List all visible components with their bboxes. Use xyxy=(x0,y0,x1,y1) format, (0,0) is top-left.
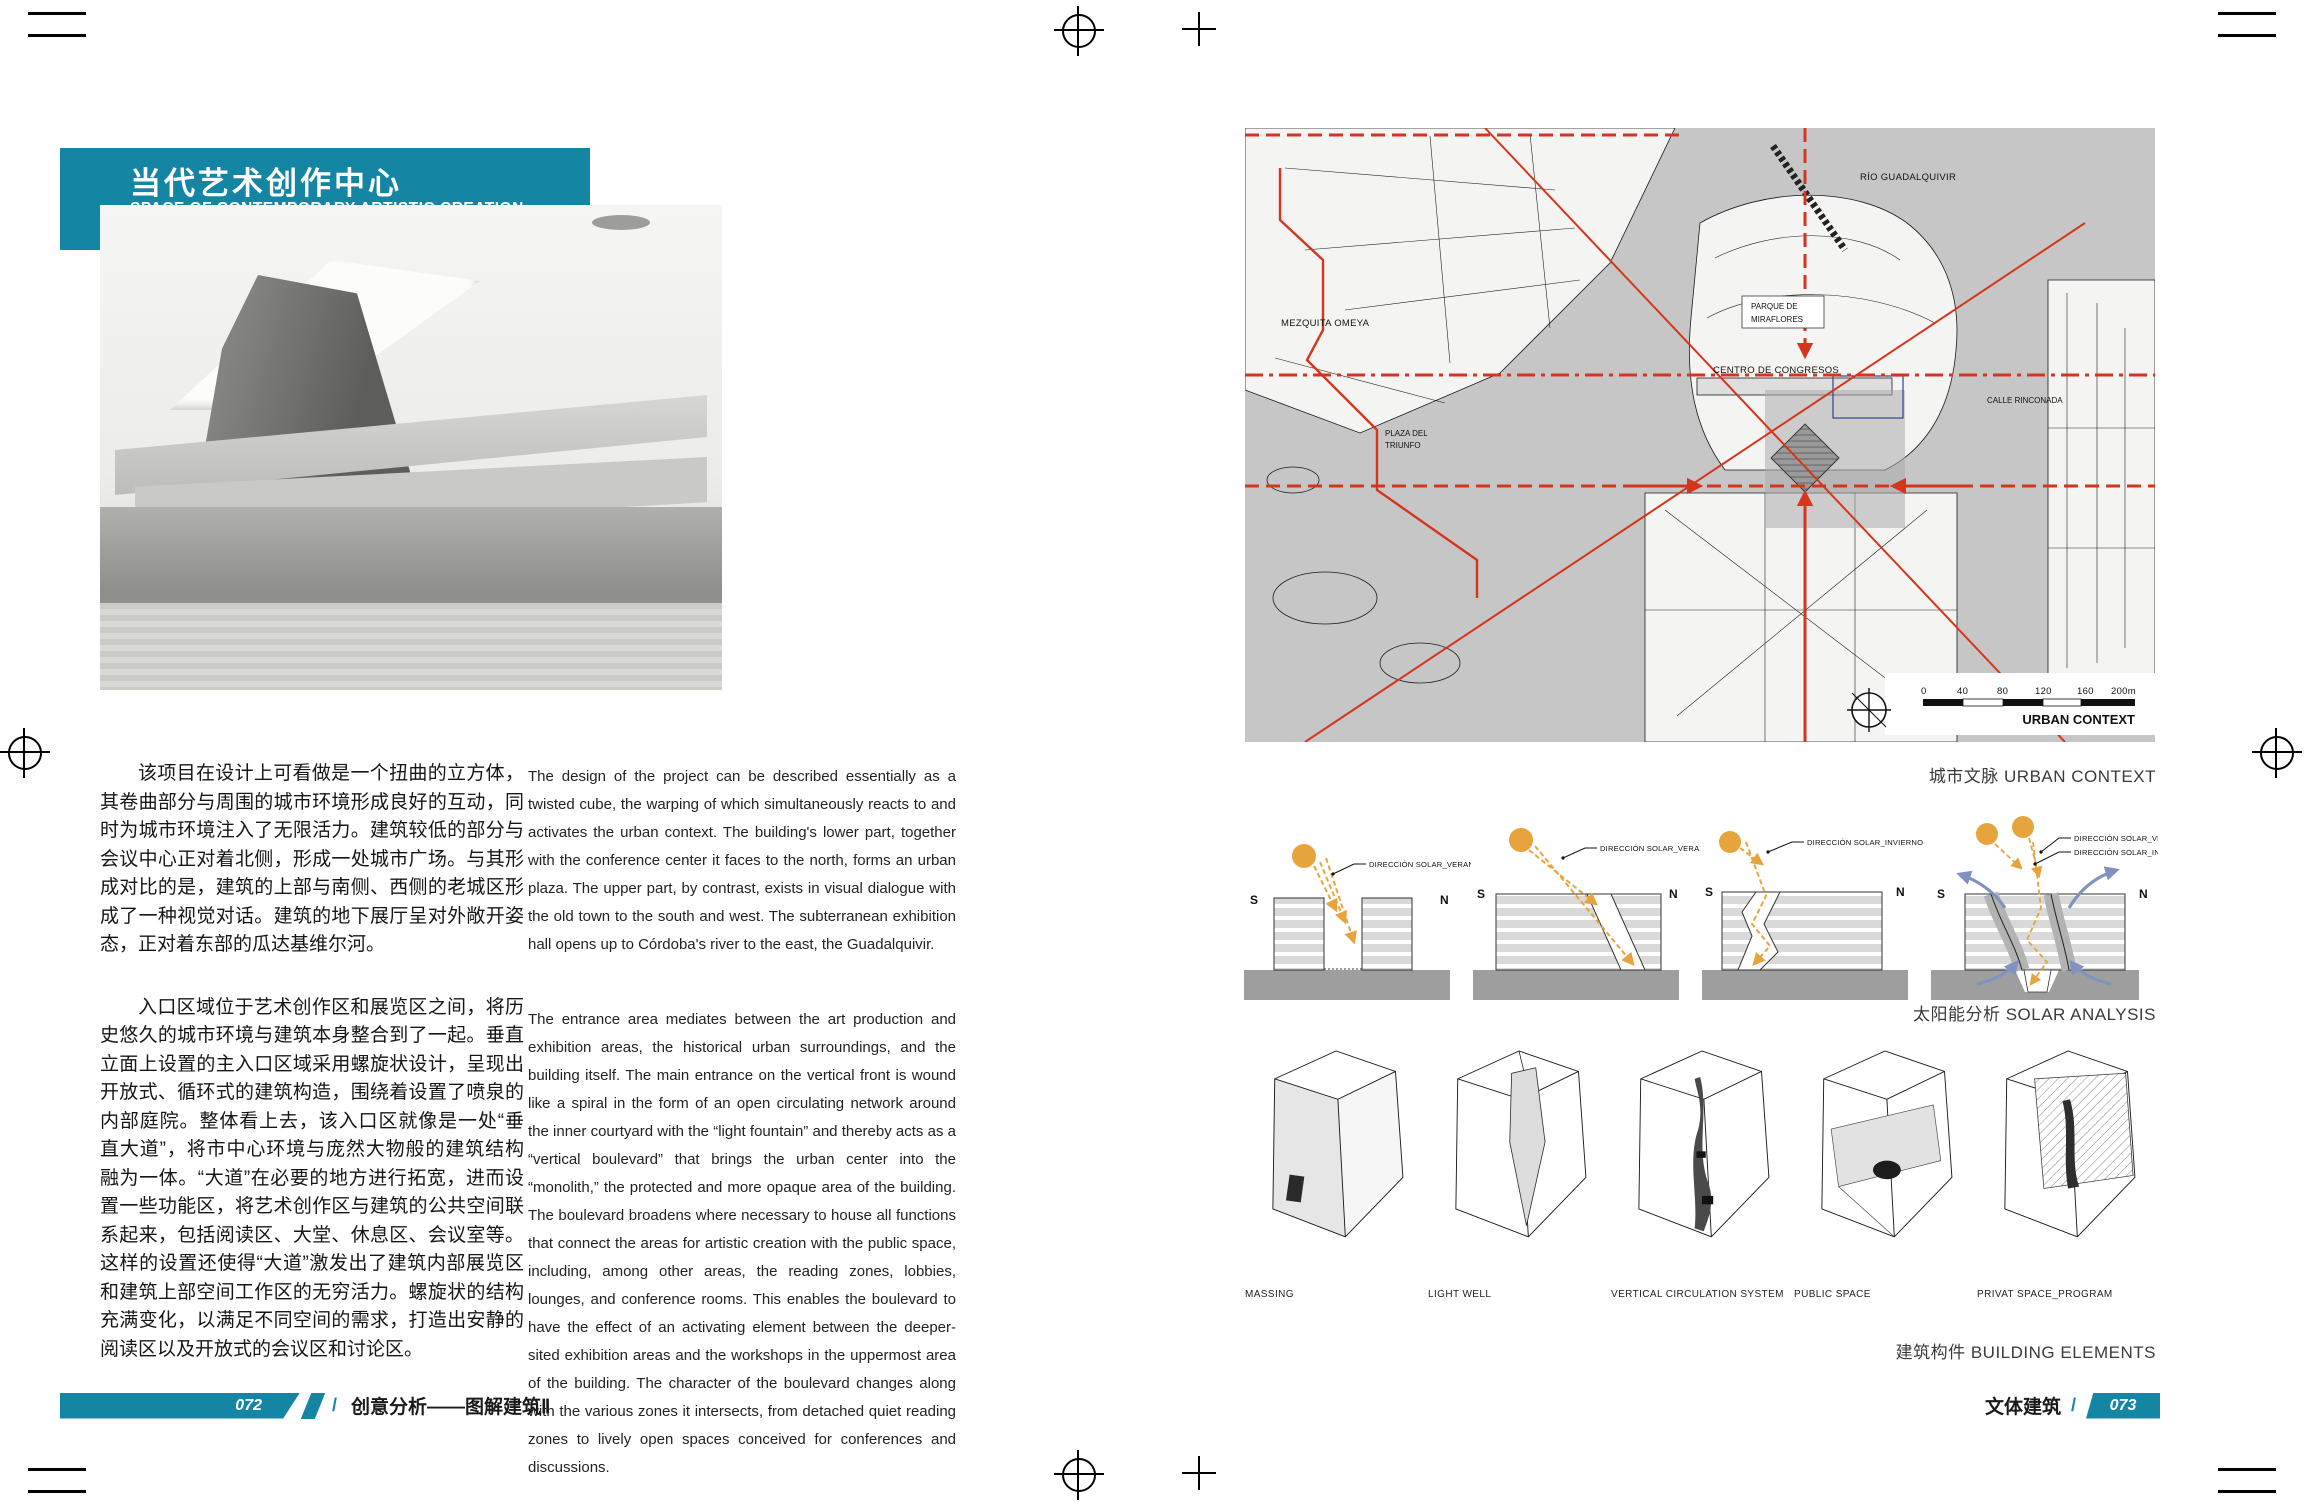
solar-annotation-verano: DIRECCIÓN SOLAR_VERANO xyxy=(2074,834,2158,843)
scale-title: URBAN CONTEXT xyxy=(2022,712,2135,727)
solar-annotation-verano: DIRECCIÓN SOLAR_VERANO xyxy=(1600,844,1700,853)
caption-solar-analysis: 太阳能分析 SOLAR ANALYSIS xyxy=(1913,1000,2156,1025)
solar-annotation-invierno: DIRECCIÓN SOLAR_INVIERNO xyxy=(1807,838,1923,847)
map-label-mezquita: MEZQUITA OMEYA xyxy=(1281,318,1370,329)
footer-slash-icon: / xyxy=(2071,1395,2076,1416)
map-svg: RÍO GUADALQUIVIR MEZQUITA OMEYA PARQUE D… xyxy=(1245,128,2155,742)
book-spread: 当代艺术创作中心 SPACE OF CONTEMPORARY ARTISTIC … xyxy=(0,0,2304,1506)
page-title-zh: 当代艺术创作中心 xyxy=(130,158,402,203)
map-label-plaza-2: TRIUNFO xyxy=(1385,441,1421,450)
element-label: MASSING xyxy=(1245,1289,1428,1300)
book-title: 创意分析——图解建筑Ⅱ xyxy=(351,1392,550,1419)
crop-mark xyxy=(28,1490,86,1493)
crop-mark xyxy=(28,1468,86,1471)
element-diagram-massing xyxy=(1245,1035,1415,1263)
element-private-space: PRIVAT SPACE_PROGRAM xyxy=(1977,1035,2160,1300)
south-label: S xyxy=(1250,893,1258,907)
solar-diagram-3: S N DIRECCIÓN SOLAR_INVIERNO xyxy=(1700,812,1929,1012)
map-label-congresos: CENTRO DE CONGRESOS xyxy=(1713,365,1839,376)
crop-mark xyxy=(2218,1468,2276,1471)
page-number-right: 073 xyxy=(2086,1393,2160,1419)
en-paragraph-2: The entrance area mediates between the a… xyxy=(528,1006,956,1482)
crop-mark xyxy=(2218,1490,2276,1493)
element-label: PRIVAT SPACE_PROGRAM xyxy=(1977,1289,2160,1300)
north-label: N xyxy=(1896,885,1905,899)
element-diagram-circulation xyxy=(1611,1035,1781,1263)
solar-diagram-4: S N DIRECCIÓN SOLAR_VERANO DIRECCIÓN SOL… xyxy=(1929,812,2158,1012)
scale-tick: 80 xyxy=(1997,686,2008,697)
building-plinth xyxy=(100,507,722,611)
footer-left: 072 / 创意分析——图解建筑Ⅱ xyxy=(60,1392,550,1419)
element-public-space: PUBLIC SPACE xyxy=(1794,1035,1977,1300)
project-render-photo xyxy=(100,205,722,690)
en-paragraph-1: The design of the project can be describ… xyxy=(528,763,956,959)
english-text-column: The design of the project can be describ… xyxy=(528,763,956,1482)
registration-mark xyxy=(1062,14,1096,48)
element-label: PUBLIC SPACE xyxy=(1794,1289,1977,1300)
urban-context-map: RÍO GUADALQUIVIR MEZQUITA OMEYA PARQUE D… xyxy=(1245,128,2155,742)
south-label: S xyxy=(1937,887,1945,901)
footer-sliver xyxy=(301,1393,326,1419)
scale-tick: 40 xyxy=(1957,686,1968,697)
solar-analysis-row: S N DIRECCIÓN SOLAR_VERANO S N DIRECCIÓN… xyxy=(1242,812,2160,1012)
zh-paragraph-2: 入口区域位于艺术创作区和展览区之间，将历史悠久的城市环境与建筑本身整合到了一起。… xyxy=(100,994,524,1365)
category-title: 文体建筑 xyxy=(1985,1392,2061,1419)
element-diagram-public-space xyxy=(1794,1035,1964,1263)
north-label: N xyxy=(2139,887,2148,901)
svg-text:MIRAFLORES: MIRAFLORES xyxy=(1751,315,1803,324)
scale-tick: 120 xyxy=(2035,686,2052,697)
element-diagram-light-well xyxy=(1428,1035,1598,1263)
north-label: N xyxy=(1440,893,1449,907)
scale-tick: 0 xyxy=(1921,686,1927,697)
blimp-in-sky xyxy=(592,215,650,230)
element-vertical-circulation: VERTICAL CIRCULATION SYSTEM xyxy=(1611,1035,1794,1300)
crop-mark xyxy=(2218,34,2276,37)
registration-mark xyxy=(2260,736,2294,770)
crop-mark xyxy=(2218,12,2276,15)
solar-annotation-verano: DIRECCIÓN SOLAR_VERANO xyxy=(1369,860,1471,869)
solar-annotation-invierno: DIRECCIÓN SOLAR_INVIERNO xyxy=(2074,848,2158,857)
solar-diagram-2: S N DIRECCIÓN SOLAR_VERANO xyxy=(1471,812,1700,1012)
river-water xyxy=(100,603,722,690)
south-label: S xyxy=(1705,885,1713,899)
scale-tick: 160 xyxy=(2077,686,2094,697)
solar-diagram-1: S N DIRECCIÓN SOLAR_VERANO xyxy=(1242,812,1471,1012)
element-label: LIGHT WELL xyxy=(1428,1289,1611,1300)
map-label-plaza-1: PLAZA DEL xyxy=(1385,429,1428,438)
svg-text:PARQUE DE: PARQUE DE xyxy=(1751,302,1798,311)
registration-mark xyxy=(1182,1456,1216,1490)
scale-tick: 200m xyxy=(2111,686,2136,697)
footer-right: 文体建筑 / 073 xyxy=(1985,1392,2160,1419)
element-label: VERTICAL CIRCULATION SYSTEM xyxy=(1611,1289,1794,1300)
caption-building-elements: 建筑构件 BUILDING ELEMENTS xyxy=(1896,1338,2156,1363)
element-light-well: LIGHT WELL xyxy=(1428,1035,1611,1300)
south-label: S xyxy=(1477,887,1485,901)
chinese-text-column: 该项目在设计上可看做是一个扭曲的立方体，其卷曲部分与周围的城市环境形成良好的互动… xyxy=(100,760,524,1364)
map-label-calle: CALLE RINCONADA xyxy=(1987,396,2063,405)
registration-mark xyxy=(1182,12,1216,46)
element-massing: MASSING xyxy=(1245,1035,1428,1300)
registration-mark xyxy=(1062,1458,1096,1492)
caption-urban-context: 城市文脉 URBAN CONTEXT xyxy=(1929,762,2156,787)
map-label-parque: PARQUE DE MIRAFLORES xyxy=(1742,296,1824,328)
registration-mark xyxy=(8,736,42,770)
building-elements-row: MASSING LIGHT WELL VERTICAL CIRCULATION … xyxy=(1245,1035,2160,1300)
crop-mark xyxy=(28,12,86,15)
footer-slash-icon: / xyxy=(332,1395,337,1416)
crop-mark xyxy=(28,34,86,37)
map-scale-bar: 0 40 80 120 160 200m URBAN CONTEXT xyxy=(1847,673,2155,735)
zh-paragraph-1: 该项目在设计上可看做是一个扭曲的立方体，其卷曲部分与周围的城市环境形成良好的互动… xyxy=(100,760,524,960)
page-number-left: 072 xyxy=(60,1393,300,1419)
map-label-river: RÍO GUADALQUIVIR xyxy=(1860,172,1956,183)
north-label: N xyxy=(1669,887,1678,901)
element-diagram-private-space xyxy=(1977,1035,2147,1263)
